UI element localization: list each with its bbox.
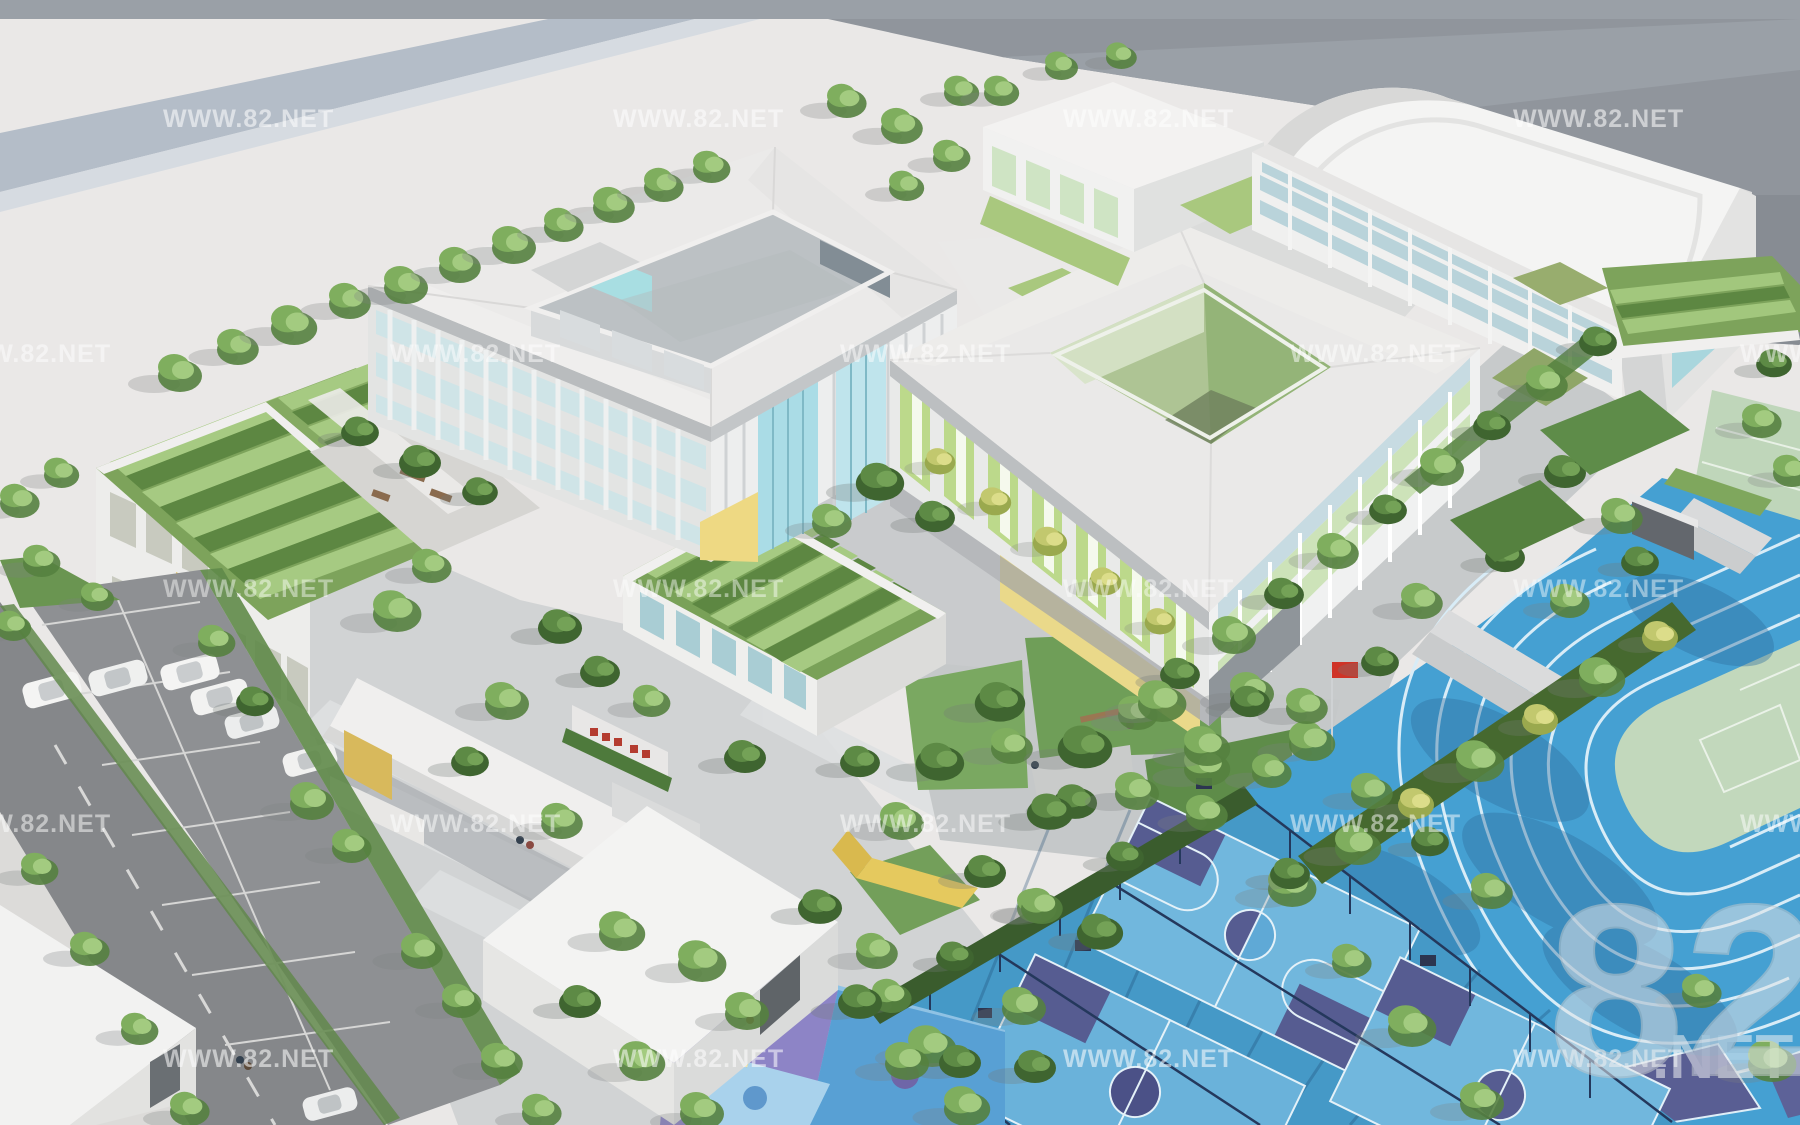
svg-text:WWW.82.NET: WWW.82.NET <box>840 810 1011 838</box>
svg-text:WWW.82.NET: WWW.82.NET <box>1513 575 1684 603</box>
svg-text:WWW.82.NET: WWW.82.NET <box>163 105 334 133</box>
svg-text:WWW.82.NET: WWW.82.NET <box>0 810 111 838</box>
svg-text:WWW.82.NET: WWW.82.NET <box>1290 810 1461 838</box>
svg-text:WWW.82.NET: WWW.82.NET <box>0 340 111 368</box>
svg-text:WWW.82.NET: WWW.82.NET <box>1063 105 1234 133</box>
svg-text:WWW.82.NET: WWW.82.NET <box>163 575 334 603</box>
svg-text:WWW.82.NET: WWW.82.NET <box>1513 105 1684 133</box>
svg-text:WWW.82.NET: WWW.82.NET <box>1063 575 1234 603</box>
svg-text:WWW.82.NET: WWW.82.NET <box>1740 340 1800 368</box>
svg-text:WWW.82.NET: WWW.82.NET <box>613 105 784 133</box>
svg-text:WWW.82.NET: WWW.82.NET <box>390 340 561 368</box>
svg-text:WWW.82.NET: WWW.82.NET <box>1063 1045 1234 1073</box>
svg-text:WWW.82.NET: WWW.82.NET <box>163 1045 334 1073</box>
svg-text:.NET: .NET <box>1652 1023 1793 1092</box>
svg-text:WWW.82.NET: WWW.82.NET <box>613 575 784 603</box>
svg-text:WWW.82.NET: WWW.82.NET <box>390 810 561 838</box>
svg-text:WWW.82.NET: WWW.82.NET <box>1290 340 1461 368</box>
svg-text:WWW.82.NET: WWW.82.NET <box>1740 810 1800 838</box>
svg-text:WWW.82.NET: WWW.82.NET <box>613 1045 784 1073</box>
svg-text:WWW.82.NET: WWW.82.NET <box>840 340 1011 368</box>
